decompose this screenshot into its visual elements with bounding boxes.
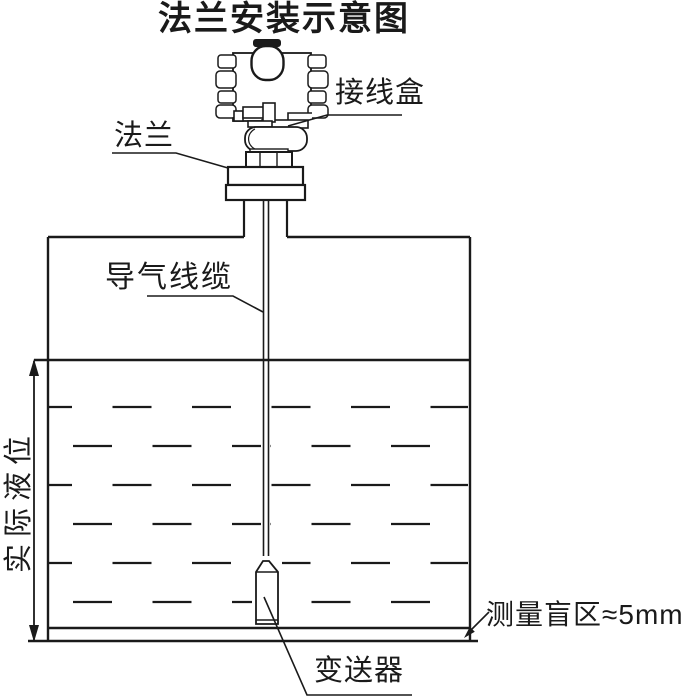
flange-label: 法兰 — [114, 122, 174, 151]
head-tab — [308, 55, 326, 68]
head-right-tabs — [308, 55, 328, 118]
probe-body — [256, 561, 278, 624]
head-neck-barrel — [245, 127, 307, 151]
flange-bottom-plate — [226, 185, 305, 200]
tank-nozzle — [244, 200, 287, 237]
page-title: 法兰安装示意图 — [158, 2, 410, 36]
flange-top-plate — [228, 167, 303, 185]
air-cable-label: 导气线缆 — [105, 263, 233, 293]
head-tab — [218, 91, 236, 103]
blind-zone-label: 测量盲区≈5mm — [486, 601, 684, 629]
leader-flange — [112, 153, 228, 168]
conduit-part — [234, 111, 243, 121]
conduit-part — [263, 103, 275, 122]
diagram-page: 法兰安装示意图 接线盒 法兰 导气线缆 实际液位 测量盲区≈5mm 变送器 — [0, 0, 700, 700]
head-tab — [216, 71, 236, 88]
head-left-tabs — [216, 55, 236, 118]
probe-transmitter — [252, 556, 282, 626]
transmitter-label: 变送器 — [314, 657, 404, 686]
head-tab — [216, 105, 236, 118]
head-tab — [308, 71, 328, 88]
actual-level-label: 实际液位 — [5, 429, 34, 573]
head-tab — [218, 55, 236, 68]
leader-air-cable — [147, 296, 263, 312]
air-guide-cable — [261, 200, 271, 561]
dimension-arrow-down — [29, 625, 39, 642]
flange-assembly — [226, 167, 305, 200]
junction-box-label: 接线盒 — [335, 79, 425, 108]
head-sight-glass — [252, 46, 284, 80]
dimension-arrow-up — [29, 359, 39, 376]
head-tab — [308, 91, 326, 103]
transmitter-head — [216, 39, 328, 169]
conduit-part — [243, 107, 264, 118]
